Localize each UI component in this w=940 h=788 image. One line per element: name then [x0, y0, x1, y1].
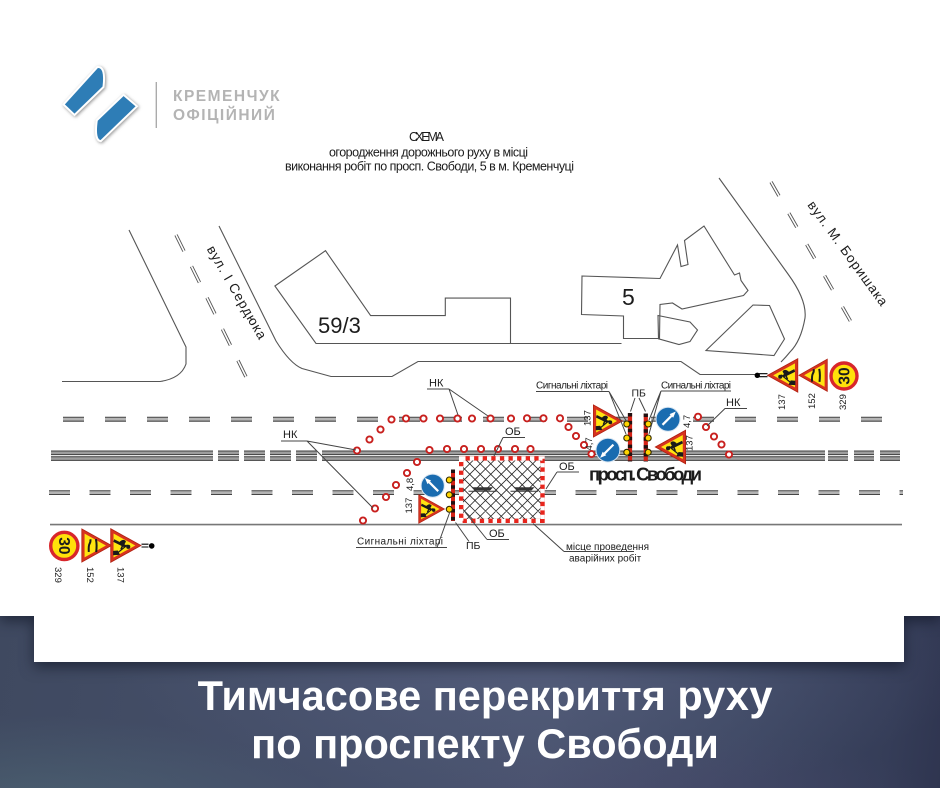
svg-text:137: 137	[404, 498, 415, 514]
svg-text:137: 137	[115, 567, 126, 583]
svg-text:Сигнальні ліхтарі: Сигнальні ліхтарі	[357, 537, 443, 548]
svg-text:Сигнальні ліхтарі: Сигнальні ліхтарі	[661, 381, 731, 392]
svg-text:5: 5	[622, 284, 635, 310]
svg-text:30: 30	[55, 537, 72, 554]
svg-text:30: 30	[837, 367, 854, 384]
svg-text:КРЕМЕНЧУК: КРЕМЕНЧУК	[173, 88, 281, 105]
svg-text:137: 137	[583, 410, 594, 426]
svg-text:4,8: 4,8	[405, 478, 416, 491]
svg-text:329: 329	[52, 567, 63, 583]
svg-text:ОБ: ОБ	[489, 528, 505, 540]
svg-text:ОБ: ОБ	[505, 426, 521, 438]
svg-text:ОФІЦІЙНИЙ: ОФІЦІЙНИЙ	[173, 106, 276, 124]
svg-text:137: 137	[685, 435, 696, 451]
svg-text:виконання робіт по просп. Своб: виконання робіт по просп. Свободи, 5 в м…	[285, 160, 574, 174]
svg-text:НК: НК	[429, 378, 444, 390]
svg-text:4,7: 4,7	[584, 437, 595, 450]
svg-text:огородження дорожнього руху в: огородження дорожнього руху в місці	[329, 146, 528, 160]
svg-text:ПБ: ПБ	[466, 540, 481, 552]
svg-text:вул. М. Боришака: вул. М. Боришака	[805, 198, 892, 309]
svg-text:вул. І Сердюка: вул. І Сердюка	[204, 243, 270, 343]
svg-text:СХЕМА: СХЕМА	[409, 130, 445, 144]
svg-text:59/3: 59/3	[318, 313, 361, 338]
svg-text:137: 137	[777, 394, 788, 410]
svg-text:просп. Свободи: просп. Свободи	[589, 464, 702, 485]
svg-text:329: 329	[838, 394, 849, 410]
svg-text:ОБ: ОБ	[559, 461, 575, 473]
svg-text:Сигнальні ліхтарі: Сигнальні ліхтарі	[536, 381, 608, 392]
svg-text:НК: НК	[283, 429, 298, 441]
svg-text:152: 152	[84, 567, 95, 583]
svg-text:ПБ: ПБ	[632, 388, 647, 400]
svg-text:НК: НК	[726, 397, 741, 409]
svg-text:аварійних робіт: аварійних робіт	[569, 553, 642, 565]
svg-text:152: 152	[807, 393, 818, 409]
svg-text:4,7: 4,7	[682, 415, 693, 428]
